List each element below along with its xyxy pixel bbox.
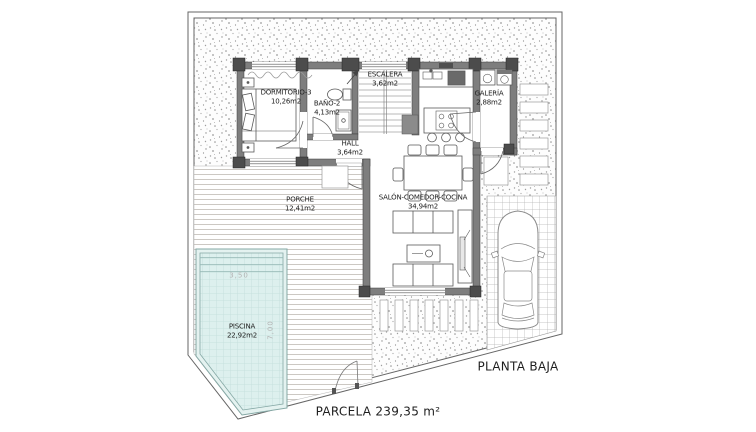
room-name: BAÑO-2 <box>314 99 340 108</box>
sofa <box>393 264 453 286</box>
room-label-bano2: BAÑO-2 4,13m2 <box>314 99 340 117</box>
plan-title: PLANTA BAJA <box>477 360 558 375</box>
bar-stool <box>442 133 451 142</box>
pool-length-dimension: 7,00 <box>267 320 276 340</box>
room-label-piscina: PISCINA 22,92m2 <box>227 322 257 340</box>
pool-width-dimension: 3,50 <box>229 272 249 281</box>
floor-plan-canvas: DORMITORIO-3 10,26m2 BAÑO-2 4,13m2 ESCAL… <box>0 0 756 432</box>
parcel-label: PARCELA 239,35 m² <box>316 405 441 420</box>
tv <box>460 237 465 270</box>
room-label-salon: SALÓN-COMEDOR-COCINA 34,94m2 <box>379 193 468 211</box>
coffee-table <box>407 245 440 262</box>
room-area: 22,92m2 <box>227 331 257 340</box>
room-area: 3,64m2 <box>337 148 363 157</box>
room-name: GALERÍA <box>475 89 504 98</box>
car-icon <box>491 211 544 329</box>
room-label-hall: HALL 3,64m2 <box>337 139 363 157</box>
room-name: SALÓN-COMEDOR-COCINA <box>379 193 468 202</box>
room-label-escalera: ESCALERA 3,62m2 <box>368 70 403 88</box>
kitchen-appliance <box>448 71 465 85</box>
room-name: DORMITORIO-3 <box>261 88 312 97</box>
entrance-landing <box>322 166 348 188</box>
bar-stool <box>456 133 465 142</box>
under-stair-closet <box>402 115 418 134</box>
room-label-galeria: GALERÍA 2,88m2 <box>475 89 504 107</box>
room-name: PISCINA <box>227 322 257 331</box>
room-label-porche: PORCHE 12,41m2 <box>285 195 315 213</box>
toilet-tank <box>343 89 351 100</box>
sink <box>423 72 432 79</box>
room-area: 2,88m2 <box>475 98 504 107</box>
room-name: PORCHE <box>285 195 315 204</box>
dining-table <box>404 156 462 190</box>
stepping-stones-bottom <box>380 300 478 331</box>
room-area: 4,13m2 <box>314 108 340 117</box>
room-area: 3,62m2 <box>368 79 403 88</box>
room-area: 12,41m2 <box>285 204 315 213</box>
room-name: HALL <box>337 139 363 148</box>
room-name: ESCALERA <box>368 70 403 79</box>
sofa <box>393 211 453 233</box>
bar-stool <box>428 133 437 142</box>
room-area: 10,26m2 <box>261 97 312 106</box>
galeria-step <box>484 157 508 185</box>
room-label-dormitorio3: DORMITORIO-3 10,26m2 <box>261 88 312 106</box>
room-area: 34,94m2 <box>379 202 468 211</box>
floor-plan-drawing <box>0 0 756 432</box>
